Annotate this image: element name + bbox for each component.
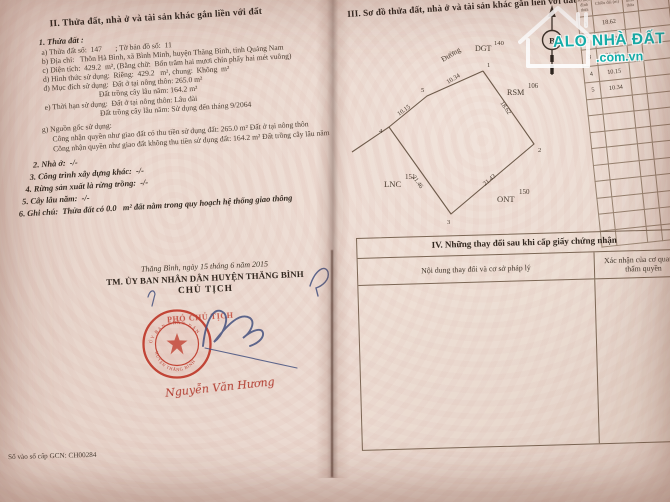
section2-title: II. Thửa đất, nhà ở và tài sản khác gắn … bbox=[49, 7, 262, 30]
vertex-1: 1 bbox=[487, 62, 490, 69]
left-page: II. Thửa đất, nhà ở và tài sản khác gắn … bbox=[0, 0, 361, 480]
vertex-number-cell bbox=[592, 147, 609, 165]
vertex-number-cell bbox=[632, 93, 649, 111]
vertex-number-cell bbox=[637, 142, 654, 160]
edge-length-cell bbox=[651, 123, 670, 143]
signature-main-stroke bbox=[203, 311, 263, 346]
page-fold-crease bbox=[331, 250, 333, 477]
vertex-number-cell: 5 bbox=[585, 81, 602, 99]
edge-length-cell bbox=[652, 139, 670, 159]
road-label: Đường bbox=[439, 45, 462, 64]
adjacent-plot-top-code: DGT bbox=[475, 44, 492, 53]
edge-length-cell bbox=[649, 106, 670, 126]
vertex-number-cell bbox=[639, 159, 656, 177]
edge-length-cell bbox=[656, 172, 670, 192]
vertex-number-cell bbox=[629, 60, 646, 78]
watermark-house-icon bbox=[500, 0, 630, 80]
vertex-number-cell bbox=[643, 191, 660, 209]
vertex-number-cell bbox=[634, 109, 651, 127]
vertex-number-cell bbox=[630, 77, 647, 95]
vertex-number-cell bbox=[641, 175, 658, 193]
edge-length-lower-right: 21.43 bbox=[482, 173, 498, 188]
kt-pen-mark bbox=[148, 291, 155, 306]
vertex-number-cell bbox=[595, 180, 612, 198]
vertex-number-cell bbox=[644, 208, 661, 226]
adjacent-plot-left-code: LNC bbox=[384, 179, 401, 189]
vertex-3: 3 bbox=[447, 219, 451, 226]
adjacent-plot-bottom-code: ONT bbox=[497, 194, 515, 204]
vertex-number-cell bbox=[597, 196, 614, 214]
edge-length-cell bbox=[654, 155, 670, 175]
item-house: 2. Nhà ở: -/- bbox=[33, 158, 78, 170]
section4-changes-table: IV. Những thay đổi sau khi cấp giấy chứn… bbox=[356, 229, 670, 451]
vertex-number-cell bbox=[599, 213, 616, 231]
adjacent-plot-left-number: 151 bbox=[405, 173, 416, 181]
vertex-number-cell bbox=[590, 131, 607, 149]
certificate-paper: II. Thửa đất, nhà ở và tài sản khác gắn … bbox=[0, 0, 670, 502]
vertex-number-cell bbox=[588, 114, 605, 132]
edge-length-right: 18.62 bbox=[498, 100, 512, 116]
edge-length-upper-left: 10.15 bbox=[396, 104, 412, 118]
pen-mark bbox=[310, 268, 328, 296]
adjacent-plot-right-number: 106 bbox=[528, 83, 539, 90]
adjacent-plot-bottom-number: 150 bbox=[519, 188, 530, 196]
vertex-number-cell bbox=[586, 98, 603, 116]
edge-length-cell bbox=[657, 188, 670, 208]
vertex-number-cell bbox=[593, 163, 610, 181]
certificate-photo: II. Thửa đất, nhà ở và tài sản khác gắn … bbox=[0, 0, 670, 502]
section4-empty-body bbox=[358, 277, 670, 450]
vertex-number-cell bbox=[636, 126, 653, 144]
vertex-2: 2 bbox=[538, 147, 541, 154]
signature-flourish-stroke bbox=[205, 348, 297, 368]
edge-length-cell bbox=[659, 205, 670, 225]
road-line bbox=[352, 71, 483, 152]
adjacent-plot-right-code: RSM bbox=[507, 88, 525, 97]
vertex-5: 5 bbox=[421, 87, 425, 94]
authority-confirm-column-header: Xác nhận của cơ quan có thẩm quyền bbox=[594, 250, 670, 279]
section4-column-divider bbox=[594, 279, 600, 443]
